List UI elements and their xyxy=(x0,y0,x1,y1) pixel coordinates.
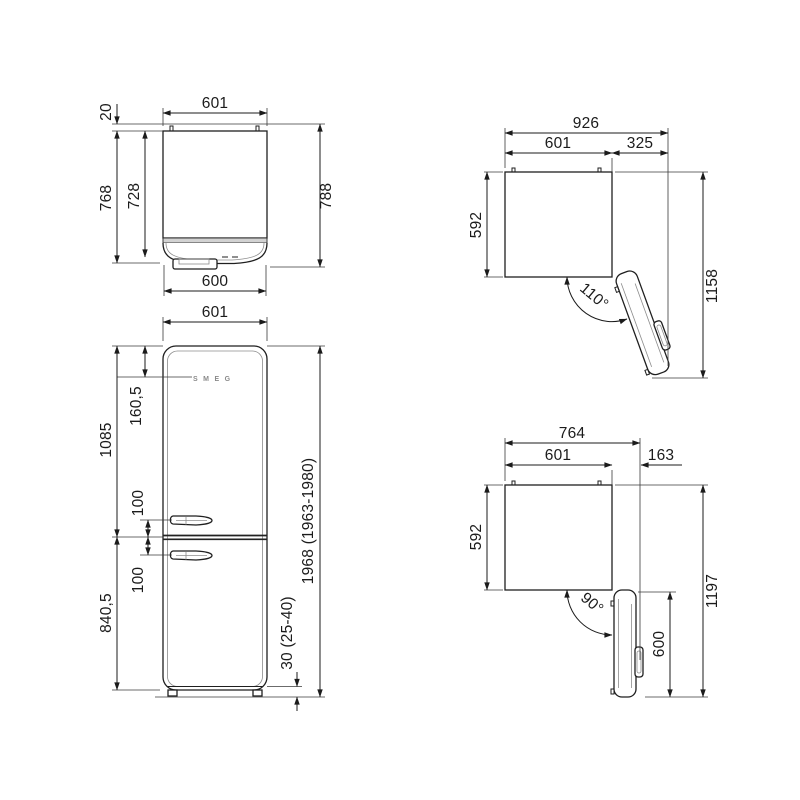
cabinet-top-view xyxy=(505,172,612,277)
foot xyxy=(168,690,177,696)
cabinet-top-view xyxy=(505,485,612,590)
brand-logo: SMEG xyxy=(193,376,236,383)
dim-label: 764 xyxy=(559,425,586,442)
dim-label: 840,5 xyxy=(98,593,115,633)
dim-label: 1085 xyxy=(98,422,115,457)
hinge-tab xyxy=(170,126,173,131)
dim-label: 768 xyxy=(98,185,115,211)
view-top-open-110: 110° 926 601 325 592 1158 xyxy=(468,115,721,378)
dim-label: 926 xyxy=(573,115,599,132)
hinge-tab xyxy=(256,126,259,131)
dim-label: 1968 (1963-1980) xyxy=(300,458,317,584)
dim-label: 601 xyxy=(202,95,228,112)
dim-label: 163 xyxy=(648,447,674,464)
angle-label: 110° xyxy=(576,280,611,313)
upper-door-handle xyxy=(170,516,212,525)
dim-label: 1158 xyxy=(704,269,721,303)
dim-label: 592 xyxy=(468,212,485,238)
dim-label: 325 xyxy=(627,135,653,152)
door-open-90 xyxy=(611,590,643,697)
cabinet-top-view xyxy=(163,131,267,238)
door-gasket-band xyxy=(163,238,267,243)
dim-label: 601 xyxy=(202,304,228,321)
view-top-open-90: 90° 764 601 163 592 600 1197 xyxy=(468,425,721,697)
dim-label: 600 xyxy=(651,631,668,658)
dim-label: 1197 xyxy=(704,574,721,608)
view-top-closed: 601 20 768 728 788 600 xyxy=(98,95,335,296)
lower-door-handle xyxy=(170,551,212,560)
dimension-drawing-page: 601 20 768 728 788 600 110° 926 601 325 xyxy=(0,0,800,800)
dim-label: 160,5 xyxy=(128,386,145,426)
dim-label: 592 xyxy=(468,524,485,550)
angle-label: 90° xyxy=(577,589,606,617)
dim-label: 601 xyxy=(545,135,571,152)
dim-label: 601 xyxy=(545,447,571,464)
foot xyxy=(253,690,262,696)
dim-label: 100 xyxy=(130,490,147,517)
dim-label: 30 (25-40) xyxy=(279,596,296,670)
dim-label: 728 xyxy=(126,183,143,209)
fridge-dimension-drawing: 601 20 768 728 788 600 110° 926 601 325 xyxy=(0,0,800,800)
dim-label: 600 xyxy=(202,273,229,290)
dim-label: 20 xyxy=(98,103,115,121)
view-front: SMEG 601 160,5 1085 100 xyxy=(98,304,325,711)
dim-label: 100 xyxy=(130,567,147,594)
dim-label: 788 xyxy=(318,183,335,209)
